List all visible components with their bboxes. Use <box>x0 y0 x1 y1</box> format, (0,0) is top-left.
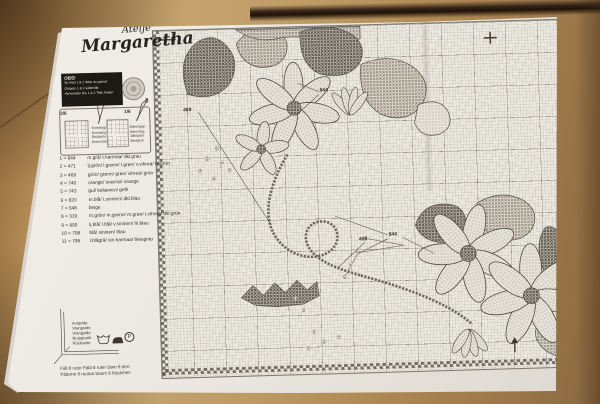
thread-legend: 1 = 844m.grå/ t.harmaa/ dkl.grau 2 = 471… <box>59 154 181 249</box>
photo-of-cross-stitch-pattern: Ateljé Margaretha OBS! Sy med 1 & 2 dela… <box>0 0 600 404</box>
center-cross-marker <box>484 32 497 44</box>
cross-stitch-ratio: 2/6 <box>60 111 67 116</box>
washtub-icon <box>97 336 109 344</box>
notice-box: OBS! Sy med 1 & 2 delar av garnet Ompele… <box>61 72 123 107</box>
cross-stitch-minigrid <box>64 120 89 149</box>
hem-note: Avigsida Vrangside Vrangside Nurjapuoli … <box>72 321 91 346</box>
notice-line: Verwenden Sie 1 & 2 Teile Faden <box>65 90 120 97</box>
chart-label-469-top: 469 <box>183 107 192 113</box>
leaf-garland-motif <box>241 280 320 308</box>
flower-motif-top <box>182 24 452 182</box>
backstitch-ratio: 1/6 <box>124 109 131 114</box>
fold-instructions: Fäll 8 rutor Fäld 8 ruter Søm 8 tern Pää… <box>60 364 131 378</box>
round-stamp-icon <box>120 75 147 102</box>
pattern-sheet: Ateljé Margaretha OBS! Sy med 1 & 2 dela… <box>0 0 600 404</box>
chart-label-469-bottom: 469 <box>359 236 368 242</box>
printed-content: Ateljé Margaretha OBS! Sy med 1 & 2 dela… <box>0 0 600 404</box>
flower-motif-bottom-right <box>340 193 586 363</box>
chart-label-844-bottom: 844 <box>389 231 398 237</box>
chart-label-844-top: 844 <box>320 87 329 93</box>
iron-icon <box>112 337 123 343</box>
backstitch-names: Efterstygn Attersting Jälkipisto Stielst… <box>129 124 145 143</box>
backstitch-minigrid <box>106 119 129 148</box>
